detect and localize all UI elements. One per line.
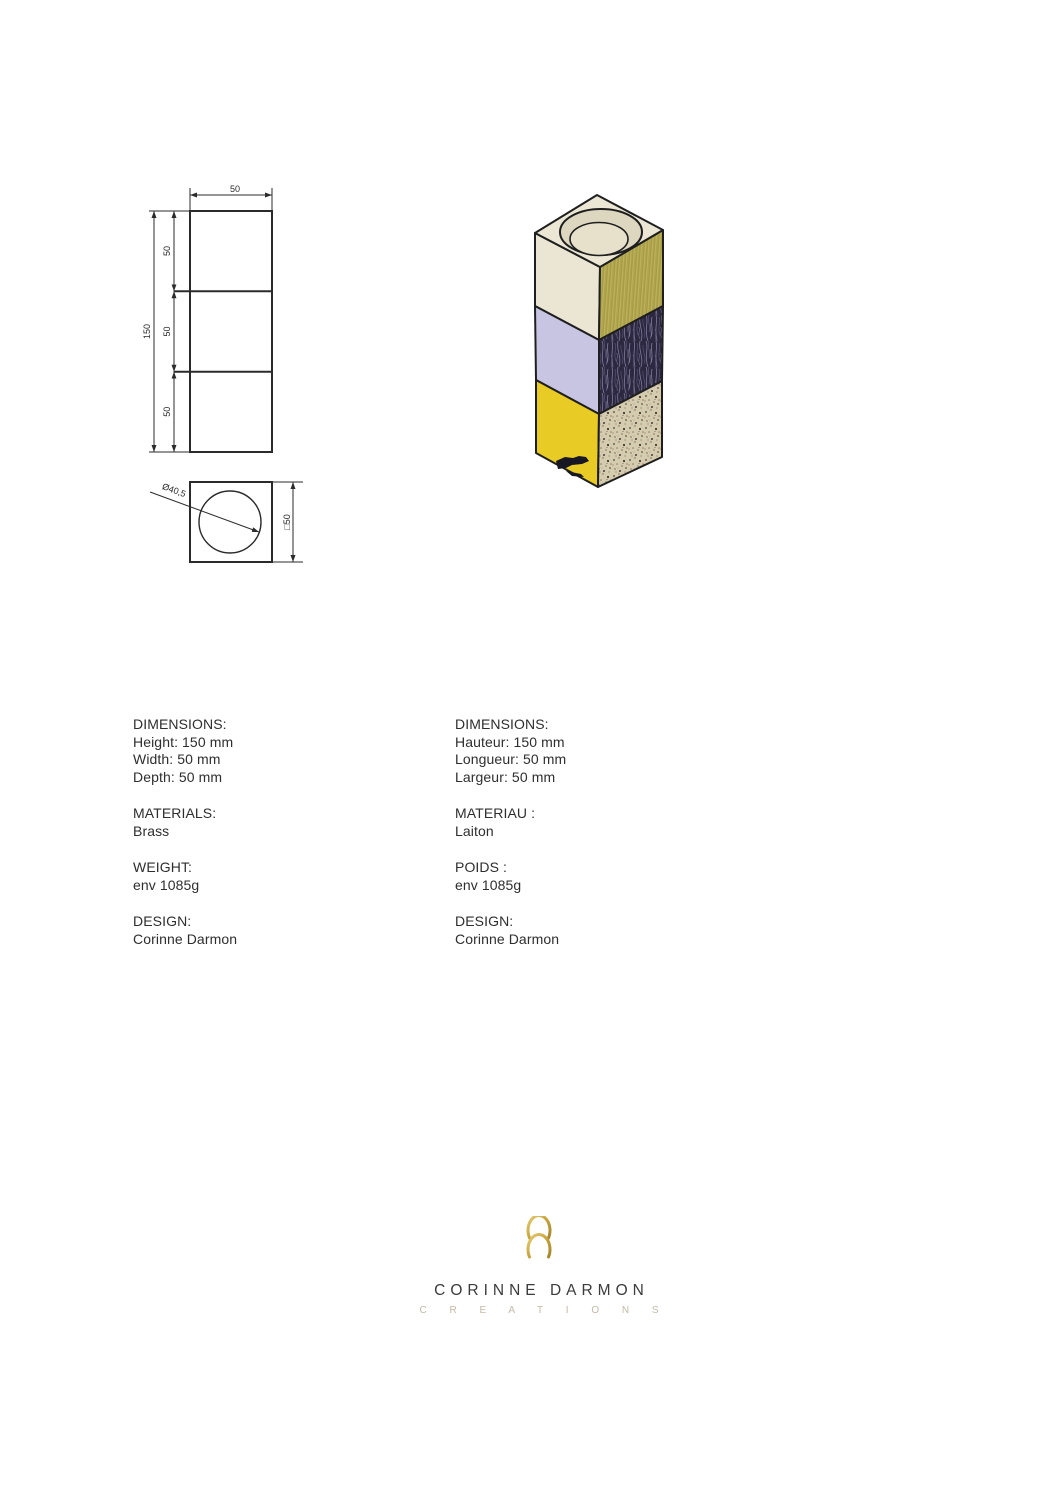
spec-line: Width: 50 mm (133, 751, 433, 769)
brand-monogram-icon (519, 1216, 559, 1280)
spec-line: Hauteur: 150 mm (455, 734, 755, 752)
spec-heading: MATERIAU : (455, 805, 755, 823)
spec-group-design-fr: DESIGN: Corinne Darmon (455, 913, 755, 948)
spec-sheet-page: 50 150 50 50 50 Ø40,5 □50 (0, 0, 1058, 1497)
isometric-render (500, 185, 700, 505)
front-view-body (190, 211, 272, 452)
dim-height-label: 150 (142, 324, 152, 339)
dim-segment-label: 50 (162, 407, 172, 417)
spec-line: Brass (133, 823, 433, 841)
spec-group-materials-fr: MATERIAU : Laiton (455, 805, 755, 840)
specs-french: DIMENSIONS: Hauteur: 150 mm Longueur: 50… (455, 716, 755, 967)
brand-name: CORINNE DARMON (334, 1282, 749, 1300)
spec-heading: DESIGN: (133, 913, 433, 931)
dim-side-label: □50 (282, 514, 292, 529)
dim-segment-label: 50 (162, 326, 172, 336)
brand-subtitle: C R E A T I O N S (339, 1305, 749, 1316)
specs-english: DIMENSIONS: Height: 150 mm Width: 50 mm … (133, 716, 433, 967)
spec-group-weight: WEIGHT: env 1085g (133, 859, 433, 894)
dim-width-label: 50 (230, 184, 240, 194)
dim-diameter-label: Ø40,5 (161, 481, 187, 499)
spec-group-dimensions-fr: DIMENSIONS: Hauteur: 150 mm Longueur: 50… (455, 716, 755, 786)
spec-line: Largeur: 50 mm (455, 769, 755, 787)
spec-line: Corinne Darmon (455, 931, 755, 949)
spec-group-weight-fr: POIDS : env 1085g (455, 859, 755, 894)
spec-heading: DIMENSIONS: (133, 716, 433, 734)
spec-line: Depth: 50 mm (133, 769, 433, 787)
spec-line: env 1085g (455, 877, 755, 895)
brand-logo: CORINNE DARMON C R E A T I O N S (329, 1216, 749, 1316)
spec-group-materials: MATERIALS: Brass (133, 805, 433, 840)
spec-line: Longueur: 50 mm (455, 751, 755, 769)
top-view-drawing: Ø40,5 □50 (140, 465, 320, 585)
spec-heading: DESIGN: (455, 913, 755, 931)
spec-group-design: DESIGN: Corinne Darmon (133, 913, 433, 948)
spec-heading: POIDS : (455, 859, 755, 877)
dim-segment-label: 50 (162, 246, 172, 256)
spec-group-dimensions: DIMENSIONS: Height: 150 mm Width: 50 mm … (133, 716, 433, 786)
spec-line: env 1085g (133, 877, 433, 895)
spec-line: Laiton (455, 823, 755, 841)
front-view-drawing: 50 150 50 50 50 (140, 180, 310, 470)
spec-line: Corinne Darmon (133, 931, 433, 949)
bore-bottom (570, 223, 628, 256)
spec-heading: DIMENSIONS: (455, 716, 755, 734)
spec-heading: WEIGHT: (133, 859, 433, 877)
spec-heading: MATERIALS: (133, 805, 433, 823)
spec-line: Height: 150 mm (133, 734, 433, 752)
